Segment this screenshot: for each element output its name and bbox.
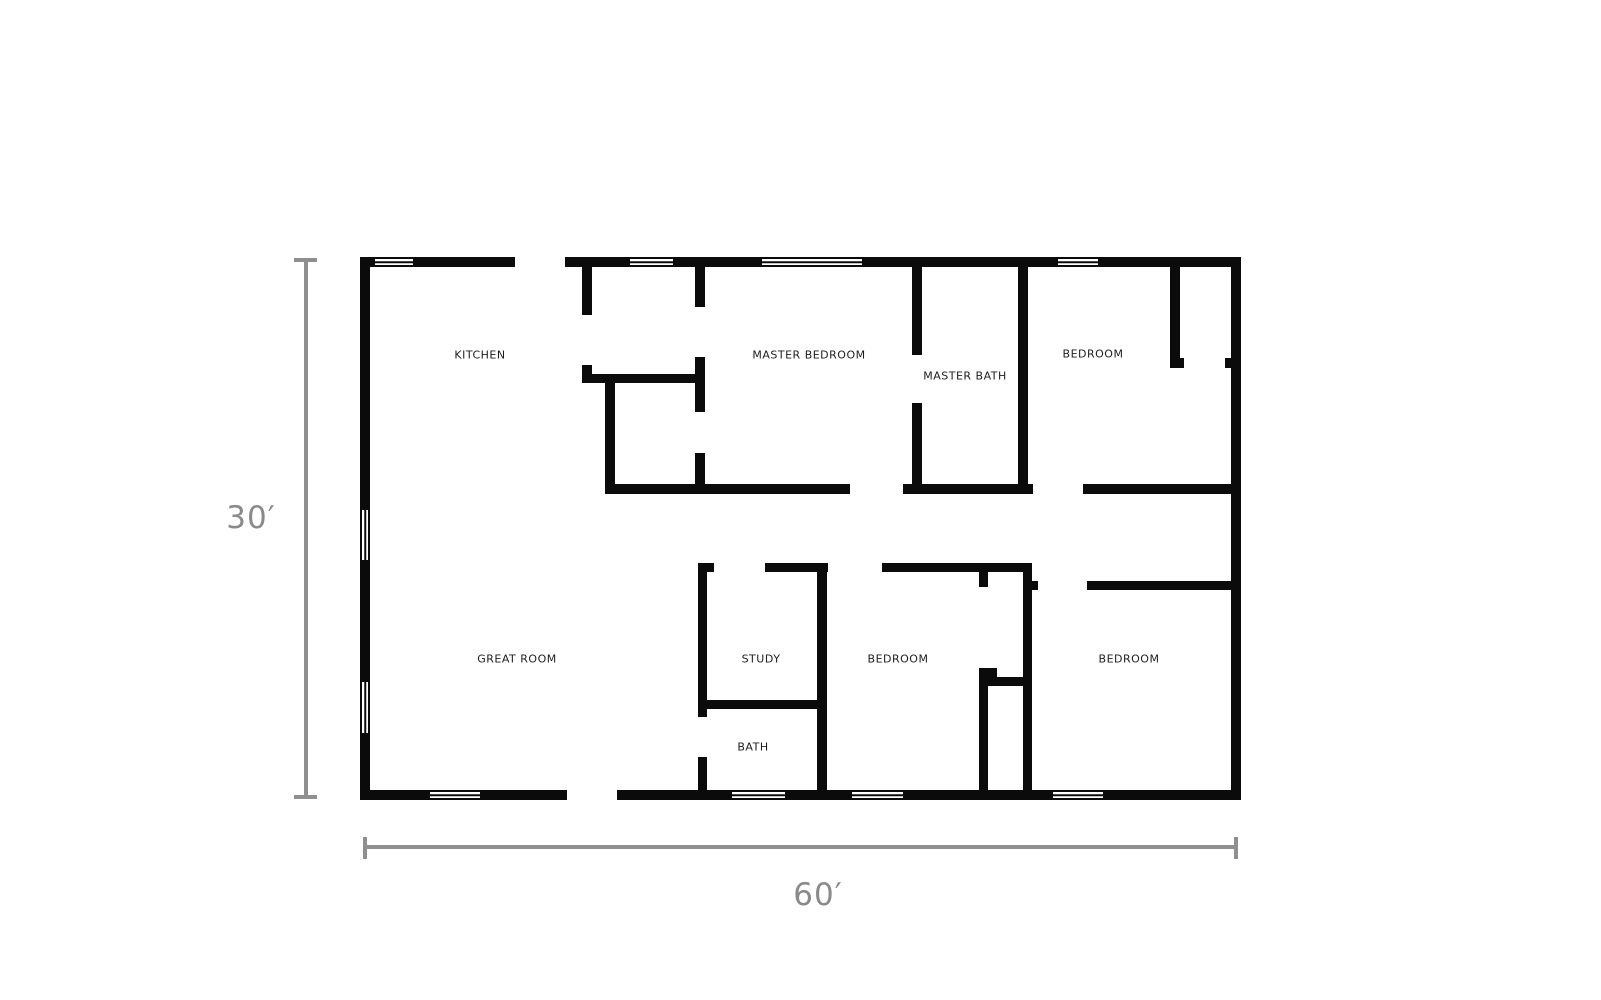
window-symbol — [360, 682, 370, 733]
wall — [1032, 581, 1038, 590]
wall — [582, 365, 592, 374]
height-dimension-cap-top — [294, 258, 317, 262]
wall — [1103, 790, 1241, 800]
wall — [903, 790, 1053, 800]
wall — [1087, 581, 1241, 590]
window-symbol — [762, 257, 862, 267]
wall — [1231, 257, 1241, 800]
window-symbol — [852, 790, 903, 800]
wall — [882, 563, 1032, 572]
window-symbol — [360, 510, 370, 560]
room-label-bedroom-3: BEDROOM — [1099, 653, 1160, 666]
wall — [360, 257, 370, 510]
window-symbol — [1053, 790, 1103, 800]
wall — [695, 357, 705, 412]
height-dimension-label: 30′ — [226, 500, 276, 536]
wall — [695, 267, 705, 307]
wall — [617, 790, 732, 800]
height-dimension-line — [304, 258, 308, 799]
wall — [565, 257, 630, 267]
window-symbol — [1058, 257, 1098, 267]
room-label-master-bedroom: MASTER BEDROOM — [752, 349, 865, 362]
room-label-bedroom-2: BEDROOM — [868, 653, 929, 666]
wall — [698, 757, 707, 790]
wall — [605, 484, 850, 494]
wall — [706, 700, 817, 709]
room-label-master-bath: MASTER BATH — [923, 370, 1007, 383]
wall — [360, 560, 370, 682]
width-dimension-cap-right — [1234, 837, 1238, 859]
wall — [912, 403, 922, 494]
wall — [582, 267, 592, 315]
wall — [480, 790, 567, 800]
wall — [988, 677, 1023, 686]
wall — [582, 374, 705, 383]
room-label-study: STUDY — [742, 653, 781, 666]
room-label-kitchen: KITCHEN — [454, 349, 505, 362]
room-label-bath: BATH — [737, 741, 768, 754]
wall — [817, 563, 827, 790]
wall — [1023, 563, 1032, 790]
wall — [785, 790, 852, 800]
wall — [1225, 358, 1231, 368]
wall — [912, 267, 922, 355]
room-label-great-room: GREAT ROOM — [477, 653, 556, 666]
window-symbol — [375, 257, 413, 267]
wall — [360, 790, 430, 800]
width-dimension-line — [367, 845, 1236, 849]
wall — [862, 257, 1058, 267]
floor-plan: KITCHEN MASTER BEDROOM MASTER BATH BEDRO… — [0, 0, 1601, 1000]
wall — [605, 383, 615, 484]
wall — [1170, 358, 1184, 368]
wall — [903, 484, 1033, 494]
wall — [698, 563, 707, 717]
height-dimension-cap-bottom — [294, 795, 317, 799]
window-symbol — [732, 790, 785, 800]
wall — [979, 572, 988, 587]
window-symbol — [630, 257, 673, 267]
wall — [1018, 267, 1028, 494]
room-label-bedroom-1: BEDROOM — [1063, 348, 1124, 361]
wall — [1170, 267, 1180, 358]
window-symbol — [430, 790, 480, 800]
width-dimension-label: 60′ — [793, 877, 843, 913]
wall — [1083, 484, 1241, 494]
width-dimension-cap-left — [363, 837, 367, 859]
wall — [413, 257, 515, 267]
wall — [673, 257, 762, 267]
wall — [979, 668, 988, 790]
wall — [1098, 257, 1241, 267]
